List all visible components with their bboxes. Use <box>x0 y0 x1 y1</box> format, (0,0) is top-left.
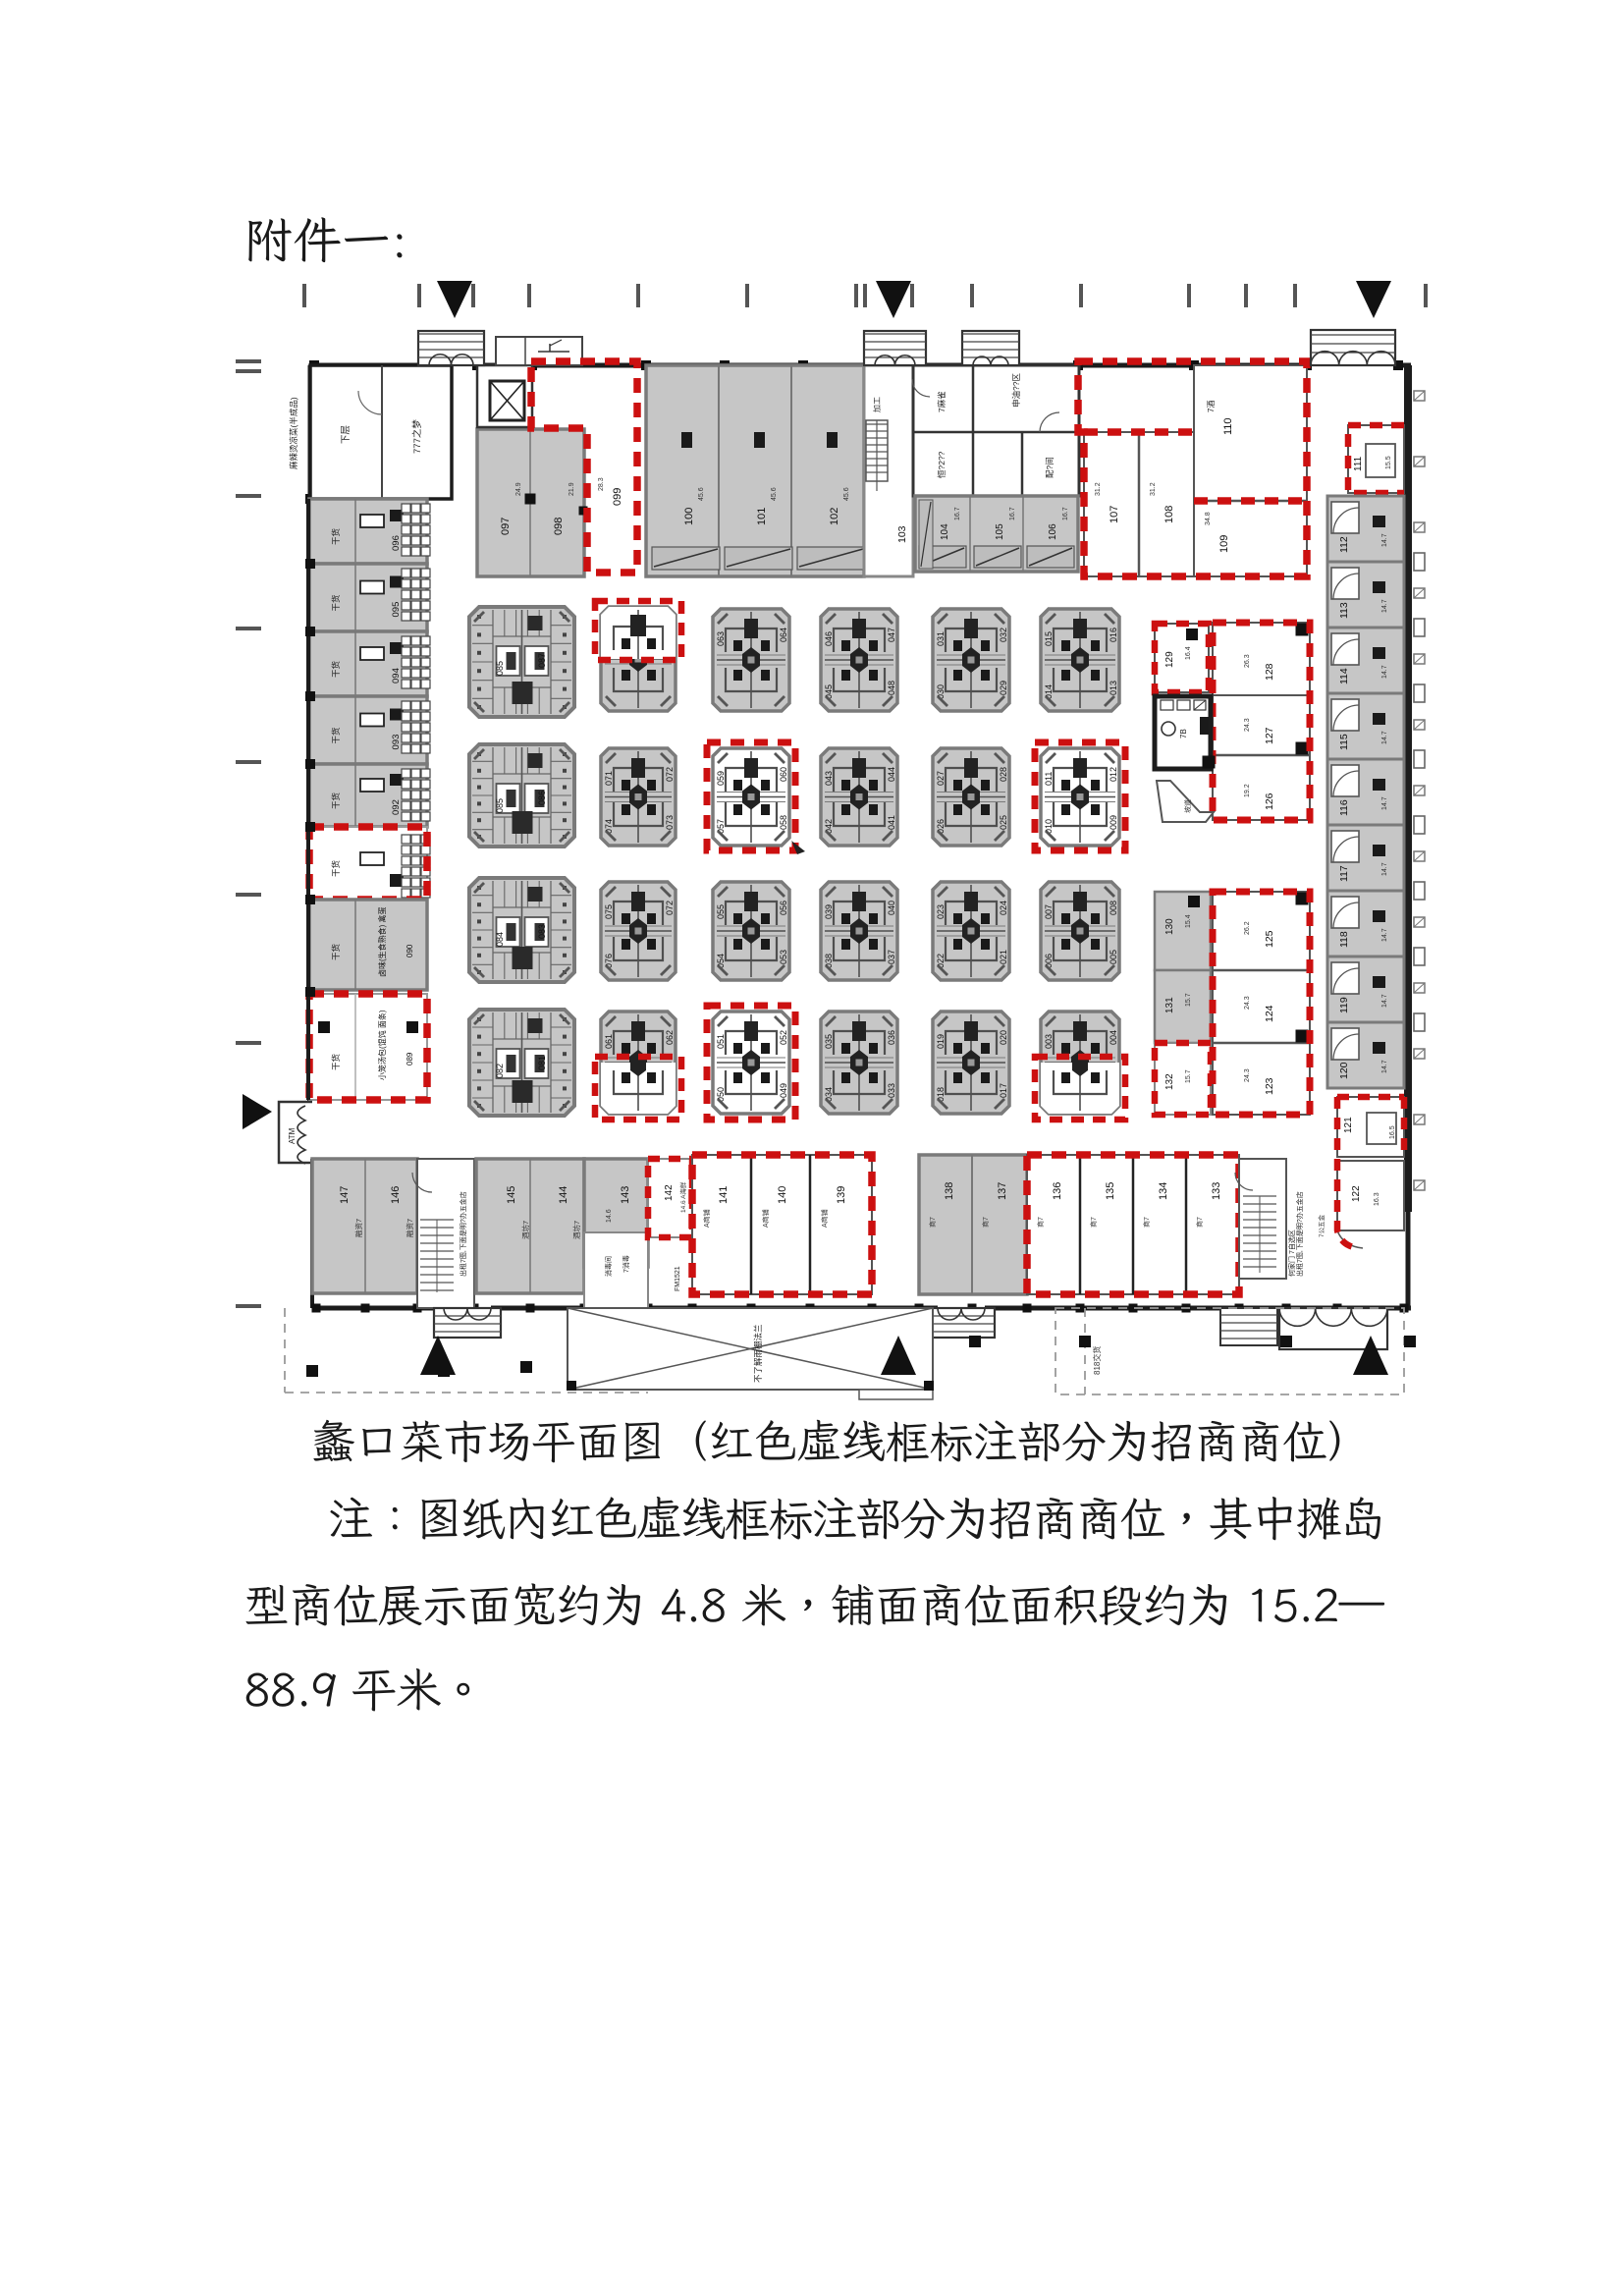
svg-text:090: 090 <box>406 944 414 957</box>
svg-text:052: 052 <box>779 1030 788 1045</box>
svg-text:098: 098 <box>553 518 565 535</box>
svg-text:115: 115 <box>1338 734 1350 750</box>
svg-text:138: 138 <box>944 1182 955 1200</box>
svg-text:干货: 干货 <box>331 943 341 960</box>
svg-text:114: 114 <box>1338 668 1350 684</box>
svg-text:060: 060 <box>779 767 788 782</box>
svg-text:商7: 商7 <box>1195 1217 1204 1228</box>
svg-text:777之梦: 777之梦 <box>411 419 423 454</box>
svg-text:干货: 干货 <box>331 859 341 877</box>
svg-text:053: 053 <box>779 950 788 964</box>
svg-text:24.3: 24.3 <box>1244 718 1251 732</box>
svg-text:145: 145 <box>506 1186 517 1204</box>
svg-text:055: 055 <box>716 904 726 919</box>
svg-text:恒?2??: 恒?2?? <box>937 451 947 478</box>
svg-text:137: 137 <box>997 1182 1008 1200</box>
svg-text:049: 049 <box>779 1083 788 1098</box>
svg-text:134: 134 <box>1158 1182 1169 1200</box>
svg-text:136: 136 <box>1052 1182 1063 1200</box>
svg-text:021: 021 <box>999 950 1008 964</box>
svg-text:089: 089 <box>406 1052 414 1066</box>
svg-text:130: 130 <box>1164 918 1175 935</box>
svg-text:下层: 下层 <box>341 425 352 444</box>
svg-text:083: 083 <box>537 924 547 939</box>
svg-text:082: 082 <box>495 1064 505 1078</box>
svg-text:116: 116 <box>1338 799 1350 816</box>
svg-text:139: 139 <box>836 1186 847 1204</box>
svg-text:146: 146 <box>390 1186 402 1204</box>
svg-text:013: 013 <box>1109 681 1118 695</box>
svg-text:044: 044 <box>887 767 896 782</box>
svg-text:105: 105 <box>995 523 1005 540</box>
svg-text:麻辣烫凉菜(半成品): 麻辣烫凉菜(半成品) <box>289 397 298 469</box>
svg-text:112: 112 <box>1338 536 1350 553</box>
svg-text:15.5: 15.5 <box>1385 456 1392 469</box>
svg-text:099: 099 <box>612 488 623 506</box>
svg-text:商7: 商7 <box>981 1217 990 1228</box>
svg-text:14.7: 14.7 <box>1381 862 1388 876</box>
svg-text:15.7: 15.7 <box>1185 993 1192 1007</box>
svg-text:14.7: 14.7 <box>1381 796 1388 810</box>
svg-text:126: 126 <box>1264 793 1275 810</box>
svg-text:131: 131 <box>1164 997 1175 1013</box>
svg-text:A商铺: A商铺 <box>761 1209 770 1228</box>
svg-text:15.4: 15.4 <box>1185 914 1192 928</box>
svg-text:113: 113 <box>1338 602 1350 619</box>
svg-text:017: 017 <box>999 1083 1008 1098</box>
svg-text:031: 031 <box>936 631 946 646</box>
svg-text:108: 108 <box>1163 506 1175 523</box>
svg-text:商7: 商7 <box>1036 1217 1045 1228</box>
svg-text:003: 003 <box>1044 1034 1054 1049</box>
svg-text:081: 081 <box>537 1056 547 1070</box>
svg-text:123: 123 <box>1264 1077 1275 1095</box>
svg-text:039: 039 <box>824 904 834 919</box>
svg-text:012: 012 <box>1109 767 1118 782</box>
svg-text:干货: 干货 <box>331 1053 341 1070</box>
svg-text:14.7: 14.7 <box>1381 994 1388 1008</box>
svg-text:072: 072 <box>665 901 675 915</box>
svg-text:14.7: 14.7 <box>1381 599 1388 613</box>
svg-text:干货: 干货 <box>331 660 341 678</box>
svg-text:104: 104 <box>940 523 950 540</box>
svg-text:035: 035 <box>824 1034 834 1049</box>
svg-text:28.3: 28.3 <box>598 477 605 491</box>
svg-text:063: 063 <box>716 631 726 646</box>
svg-text:075: 075 <box>604 904 614 919</box>
svg-text:046: 046 <box>824 631 834 646</box>
svg-text:酒坊7: 酒坊7 <box>520 1221 530 1239</box>
svg-text:096: 096 <box>391 535 402 551</box>
svg-text:14.6: 14.6 <box>606 1209 613 1223</box>
svg-text:19.2: 19.2 <box>1244 784 1251 797</box>
svg-text:147: 147 <box>339 1186 351 1204</box>
svg-text:062: 062 <box>665 1030 675 1045</box>
svg-text:024: 024 <box>999 901 1008 915</box>
svg-text:072: 072 <box>665 767 675 782</box>
svg-text:16.7: 16.7 <box>1062 507 1069 520</box>
svg-text:A商铺: A商铺 <box>702 1209 711 1228</box>
svg-text:056: 056 <box>779 901 788 915</box>
svg-text:融资7: 融资7 <box>353 1219 363 1237</box>
svg-text:14.7: 14.7 <box>1381 731 1388 744</box>
svg-text:7消毒: 7消毒 <box>622 1255 630 1273</box>
svg-text:033: 033 <box>887 1083 896 1098</box>
svg-text:064: 064 <box>779 628 788 642</box>
svg-text:110: 110 <box>1222 417 1234 435</box>
svg-text:102: 102 <box>829 508 840 525</box>
svg-text:16.4: 16.4 <box>1185 646 1192 660</box>
svg-text:097: 097 <box>500 518 512 535</box>
svg-text:121: 121 <box>1343 1117 1354 1133</box>
svg-text:016: 016 <box>1109 628 1118 642</box>
svg-text:073: 073 <box>665 815 675 830</box>
svg-text:16.3: 16.3 <box>1374 1192 1380 1206</box>
svg-text:16.5: 16.5 <box>1389 1125 1396 1139</box>
svg-text:100: 100 <box>683 508 695 525</box>
svg-text:020: 020 <box>999 1030 1008 1045</box>
svg-text:127: 127 <box>1264 727 1275 744</box>
svg-text:配?间: 配?间 <box>1045 457 1055 478</box>
svg-text:消毒间: 消毒间 <box>604 1256 613 1277</box>
svg-text:14.7: 14.7 <box>1381 928 1388 942</box>
svg-text:124: 124 <box>1264 1005 1275 1022</box>
svg-text:商7: 商7 <box>1142 1217 1151 1228</box>
svg-text:011: 011 <box>1044 772 1054 786</box>
svg-text:15.7: 15.7 <box>1185 1069 1192 1083</box>
svg-text:7酒: 7酒 <box>1207 401 1216 412</box>
svg-text:FM1521: FM1521 <box>675 1266 681 1291</box>
svg-text:128: 128 <box>1264 663 1275 681</box>
svg-text:何家门 7自选区: 何家门 7自选区 <box>1287 1230 1296 1277</box>
svg-text:122: 122 <box>1351 1185 1362 1202</box>
svg-text:092: 092 <box>391 799 402 815</box>
svg-text:125: 125 <box>1264 930 1275 948</box>
svg-text:103: 103 <box>896 525 908 543</box>
svg-text:7麻雀: 7麻雀 <box>937 391 947 412</box>
svg-text:027: 027 <box>936 771 946 786</box>
svg-text:040: 040 <box>887 901 896 915</box>
svg-text:004: 004 <box>1109 1030 1118 1045</box>
svg-text:041: 041 <box>887 815 896 830</box>
svg-text:019: 019 <box>936 1034 946 1049</box>
svg-text:申油??区: 申油??区 <box>1011 373 1021 408</box>
svg-text:14.7: 14.7 <box>1381 533 1388 547</box>
svg-text:24.3: 24.3 <box>1244 1068 1251 1082</box>
svg-text:094: 094 <box>391 668 402 683</box>
svg-text:029: 029 <box>999 681 1008 695</box>
svg-text:24.9: 24.9 <box>515 482 522 496</box>
svg-text:34.8: 34.8 <box>1205 512 1212 525</box>
svg-text:加工: 加工 <box>872 397 882 412</box>
svg-text:084: 084 <box>495 932 505 947</box>
svg-text:45.6: 45.6 <box>698 487 705 501</box>
svg-text:007: 007 <box>1044 904 1054 919</box>
svg-text:058: 058 <box>779 815 788 830</box>
svg-text:132: 132 <box>1164 1073 1175 1090</box>
svg-text:047: 047 <box>887 628 896 642</box>
svg-text:酒坊7: 酒坊7 <box>571 1221 581 1239</box>
svg-text:小笼汤包(馄饨 面条): 小笼汤包(馄饨 面条) <box>377 1010 387 1080</box>
svg-text:107: 107 <box>1109 506 1120 523</box>
svg-text:16.7: 16.7 <box>954 507 961 520</box>
svg-text:059: 059 <box>716 771 726 786</box>
svg-text:111: 111 <box>1353 456 1364 471</box>
svg-text:051: 051 <box>716 1034 726 1049</box>
svg-text:009: 009 <box>1109 815 1118 830</box>
svg-text:036: 036 <box>887 1030 896 1045</box>
svg-text:26.2: 26.2 <box>1244 921 1251 935</box>
svg-text:干货: 干货 <box>331 792 341 809</box>
svg-text:106: 106 <box>1048 523 1058 540</box>
svg-text:144: 144 <box>558 1186 569 1204</box>
svg-text:干货: 干货 <box>331 727 341 744</box>
svg-text:095: 095 <box>391 602 402 618</box>
svg-text:26.3: 26.3 <box>1244 654 1251 668</box>
svg-text:坡道: 坡道 <box>1183 799 1192 813</box>
svg-text:31.2: 31.2 <box>1150 482 1157 496</box>
svg-text:109: 109 <box>1218 535 1230 553</box>
svg-text:14.7: 14.7 <box>1381 1060 1388 1073</box>
svg-text:135: 135 <box>1105 1182 1116 1200</box>
svg-text:043: 043 <box>824 771 834 786</box>
svg-text:干货: 干货 <box>331 527 341 545</box>
svg-text:086: 086 <box>537 791 547 805</box>
svg-text:015: 015 <box>1044 631 1054 646</box>
svg-text:093: 093 <box>391 735 402 750</box>
svg-text:24.3: 24.3 <box>1244 996 1251 1010</box>
svg-text:008: 008 <box>1109 901 1118 915</box>
svg-text:14.7: 14.7 <box>1381 665 1388 679</box>
svg-text:085: 085 <box>495 798 505 813</box>
svg-text:101: 101 <box>756 508 768 525</box>
svg-text:商7: 商7 <box>928 1217 937 1228</box>
svg-text:818交货: 818交货 <box>1092 1346 1102 1375</box>
svg-text:048: 048 <box>887 681 896 695</box>
svg-text:31.2: 31.2 <box>1095 482 1102 496</box>
svg-text:028: 028 <box>999 767 1008 782</box>
svg-text:037: 037 <box>887 950 896 964</box>
svg-text:45.6: 45.6 <box>771 487 778 501</box>
svg-text:出租7图,下面是明?办五金店: 出租7图,下面是明?办五金店 <box>459 1191 467 1277</box>
svg-text:120: 120 <box>1338 1062 1350 1079</box>
svg-text:21.9: 21.9 <box>568 482 575 496</box>
svg-text:071: 071 <box>604 771 614 786</box>
svg-text:卤味(生食熟食) 禽蛋: 卤味(生食熟食) 禽蛋 <box>377 906 387 977</box>
svg-text:不了解雨棚法兰: 不了解雨棚法兰 <box>753 1324 763 1383</box>
svg-text:085: 085 <box>495 661 505 676</box>
svg-text:133: 133 <box>1211 1182 1222 1200</box>
svg-text:023: 023 <box>936 904 946 919</box>
svg-text:087: 087 <box>537 653 547 668</box>
svg-text:025: 025 <box>999 815 1008 830</box>
svg-text:45.6: 45.6 <box>843 487 850 501</box>
svg-text:129: 129 <box>1164 651 1175 668</box>
svg-text:干货: 干货 <box>331 594 341 612</box>
svg-text:032: 032 <box>999 628 1008 642</box>
svg-text:119: 119 <box>1338 997 1350 1013</box>
svg-text:16.7: 16.7 <box>1009 507 1016 520</box>
svg-text:A商铺: A商铺 <box>820 1209 829 1228</box>
svg-text:14.6 A海鲜: 14.6 A海鲜 <box>678 1181 687 1213</box>
svg-text:143: 143 <box>620 1186 631 1204</box>
svg-text:061: 061 <box>604 1034 614 1049</box>
svg-text:118: 118 <box>1338 931 1350 948</box>
svg-text:005: 005 <box>1109 950 1118 964</box>
svg-text:融资7: 融资7 <box>405 1219 414 1237</box>
svg-text:141: 141 <box>718 1186 730 1204</box>
svg-text:117: 117 <box>1338 865 1350 882</box>
svg-text:142: 142 <box>664 1184 675 1201</box>
svg-text:7B: 7B <box>1179 729 1188 738</box>
svg-text:7公五金: 7公五金 <box>1317 1214 1325 1237</box>
svg-text:140: 140 <box>777 1186 788 1204</box>
svg-text:ATM: ATM <box>288 1127 297 1144</box>
svg-text:出租7图,下面是明?办五金店: 出租7图,下面是明?办五金店 <box>1295 1191 1304 1277</box>
svg-text:商7: 商7 <box>1089 1217 1098 1228</box>
